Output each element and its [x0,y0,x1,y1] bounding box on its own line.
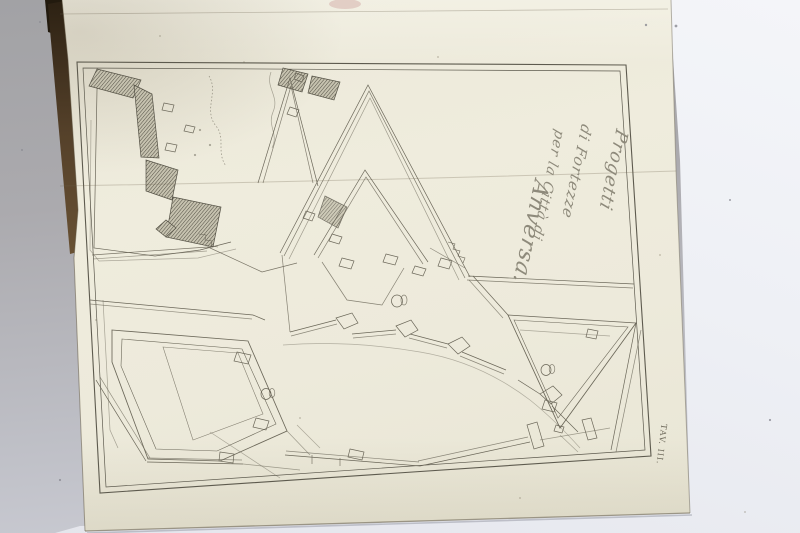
photo-of-book-plate: Progetti di Fortezze per la Città di Anv… [0,0,800,533]
right-bastion-drawing [469,276,641,452]
plate-number-label: TAV. III. [655,424,669,466]
stain [329,0,361,9]
bottom-works-drawing [285,418,610,466]
paper-speckles [95,35,746,513]
title-line-4: Anversa. [507,174,554,288]
citadel-drawing [89,68,347,261]
engraved-plate: Progetti di Fortezze per la Città di Anv… [0,0,800,533]
left-bastion-drawing [90,247,300,478]
plate-border [77,62,651,493]
plate-title: Progetti di Fortezze per la Città di Anv… [507,122,631,288]
